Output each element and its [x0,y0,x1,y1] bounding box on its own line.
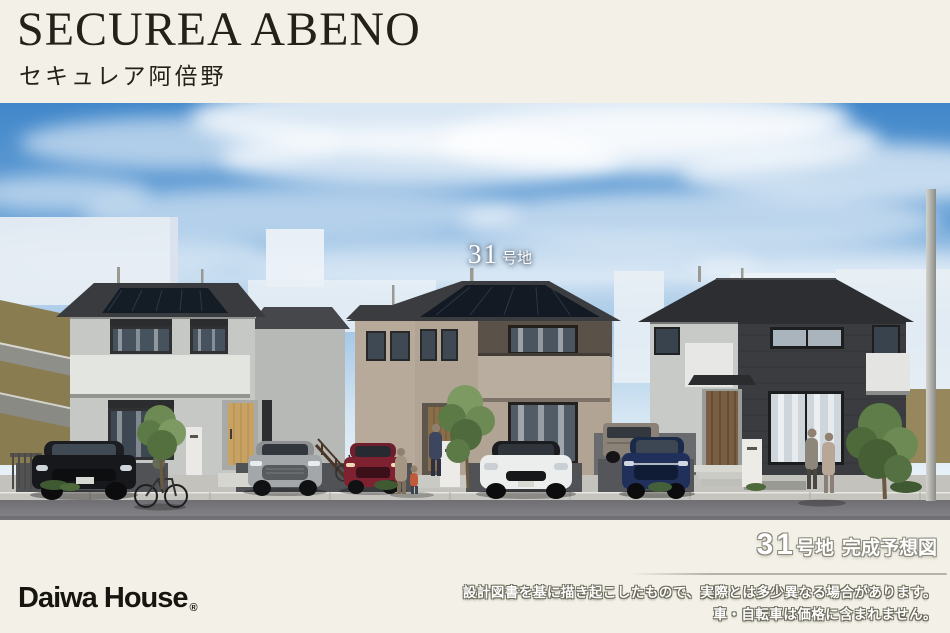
house-right-balcony [866,353,910,393]
rendering-image: 31号地 [0,103,950,520]
lot-suffix: 号地 [502,251,532,267]
logo-text: Daiwa House [18,582,188,614]
house-center-balcony [478,356,610,400]
rendering-scene [0,103,950,520]
lot-number-label: 31号地 [468,239,532,270]
rendering-caption: 31号地完成予想図 [463,528,937,567]
house-left-balcony [70,355,250,397]
caption-lot-number: 31 [757,528,796,561]
caption-label: 完成予想図 [842,538,937,559]
utility-pole [926,189,936,501]
house-left-2f-windows [110,319,228,354]
car-black-compact [30,441,138,500]
disclaimer-line-2: 車・自転車は価格に含まれません。 [463,605,937,624]
header: SECUREA ABENO セキュレア阿倍野 [0,0,950,103]
caption-divider [630,573,947,575]
footer: Daiwa House® 31号地完成予想図 設計図書を基に描き起こしたもので、… [0,520,950,633]
caption-lot-unit: 号地 [796,538,834,559]
lot-number: 31 [468,239,499,269]
disclaimer-line-1: 設計図書を基に描き起こしたもので、実際とは多少異なる場合があります。 [463,583,937,602]
house-right-door [706,391,738,465]
sidewalk [0,492,950,501]
daiwa-house-logo: Daiwa House® [18,582,198,615]
page: SECUREA ABENO セキュレア阿倍野 [0,0,950,633]
page-title: SECUREA ABENO [17,2,421,57]
caption-block: 31号地完成予想図 設計図書を基に描き起こしたもので、実際とは多少異なる場合があ… [463,528,937,627]
page-subtitle: セキュレア阿倍野 [19,57,227,91]
registered-trademark: ® [190,602,198,614]
